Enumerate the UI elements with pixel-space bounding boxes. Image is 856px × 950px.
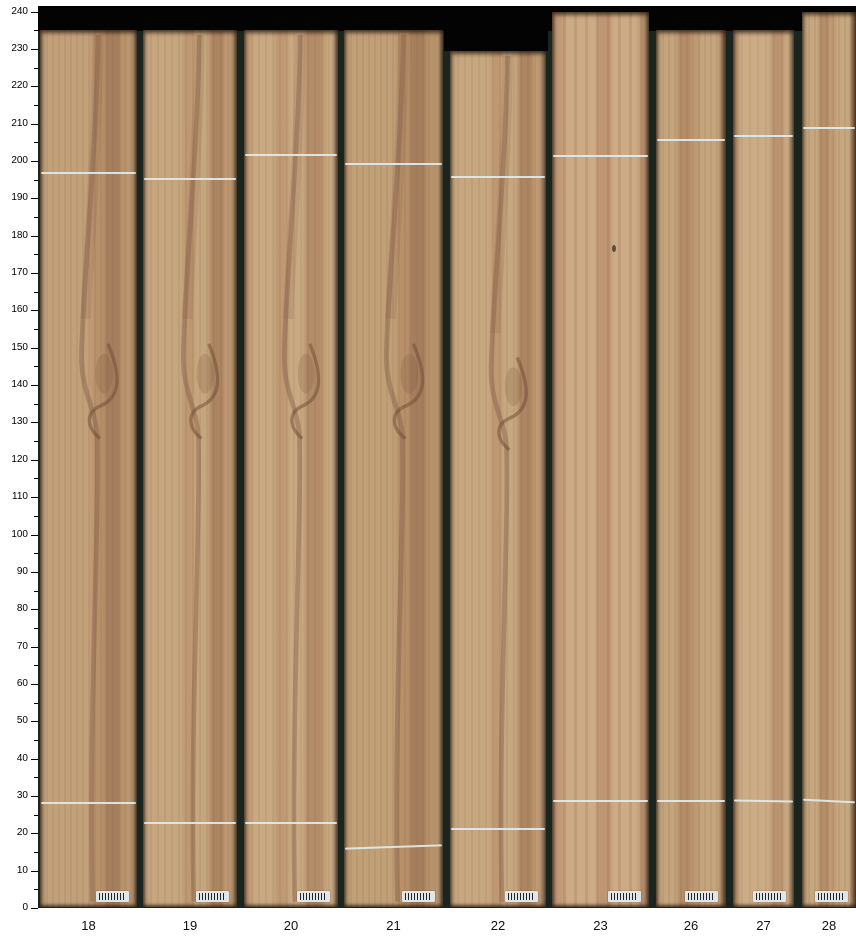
barcode-sticker [505,891,538,902]
board-23 [552,12,649,907]
upper-chalk-mark [144,178,236,180]
upper-chalk-mark [734,135,793,137]
wood-grain-knot-icon [450,51,546,907]
y-axis-tick-label: 100 [0,529,28,541]
y-axis-minor-tick [34,889,38,890]
y-axis-major-tick [31,796,38,797]
lower-chalk-mark [657,800,725,802]
barcode-sticker [685,891,718,902]
y-axis-minor-tick [34,553,38,554]
y-axis-tick-label: 110 [0,491,28,503]
wood-grain-knot-icon [244,30,338,907]
y-axis-tick-label: 130 [0,416,28,428]
y-axis-minor-tick [34,478,38,479]
y-axis-tick-label: 70 [0,641,28,653]
upper-chalk-mark [345,163,442,165]
barcode-sticker [96,891,129,902]
board-22 [450,51,546,907]
y-axis-major-tick [31,572,38,573]
y-axis-minor-tick [34,628,38,629]
y-axis-major-tick [31,86,38,87]
y-axis-major-tick [31,348,38,349]
barcode-sticker [753,891,786,902]
y-axis-major-tick [31,721,38,722]
y-axis-minor-tick [34,852,38,853]
y-axis-minor-tick [34,142,38,143]
upper-chalk-mark [245,154,337,156]
lower-chalk-mark [41,802,136,804]
y-axis-tick-label: 0 [0,902,28,914]
x-axis-label-21: 21 [374,918,414,933]
y-axis-tick-label: 240 [0,6,28,18]
y-axis-minor-tick [34,703,38,704]
y-axis-tick-label: 150 [0,342,28,354]
y-axis-major-tick [31,535,38,536]
y-axis-tick-label: 50 [0,715,28,727]
y-axis-tick-label: 180 [0,230,28,242]
y-axis-minor-tick [34,815,38,816]
y-axis-minor-tick [34,217,38,218]
y-axis-tick-label: 190 [0,192,28,204]
board-28 [802,12,856,907]
y-axis-major-tick [31,385,38,386]
y-axis-major-tick [31,833,38,834]
y-axis-major-tick [31,460,38,461]
barcode-sticker [608,891,641,902]
y-axis-minor-tick [34,105,38,106]
lower-chalk-mark [245,822,337,824]
wood-board-figure: 0102030405060708090100110120130140150160… [0,0,856,950]
y-axis-major-tick [31,609,38,610]
upper-chalk-mark [41,172,136,174]
lower-chalk-mark [451,828,545,830]
y-axis-major-tick [31,497,38,498]
y-axis-tick-label: 160 [0,304,28,316]
y-axis-tick-label: 230 [0,43,28,55]
y-axis-major-tick [31,759,38,760]
x-axis-label-26: 26 [671,918,711,933]
y-axis-major-tick [31,161,38,162]
small-knot-speck [612,245,616,252]
y-axis-major-tick [31,124,38,125]
y-axis-minor-tick [34,254,38,255]
background-top-band-column-22 [444,6,548,51]
y-axis-major-tick [31,12,38,13]
y-axis-minor-tick [34,516,38,517]
board-21 [344,30,443,907]
y-axis-minor-tick [34,329,38,330]
upper-chalk-mark [803,127,855,129]
y-axis-minor-tick [34,665,38,666]
y-axis-tick-label: 80 [0,603,28,615]
x-axis-label-19: 19 [170,918,210,933]
y-axis-tick-label: 220 [0,80,28,92]
y-axis-minor-tick [34,30,38,31]
y-axis-tick-label: 90 [0,566,28,578]
upper-chalk-mark [553,155,648,157]
lower-chalk-mark [803,798,855,803]
y-axis-tick-label: 120 [0,454,28,466]
y-axis-minor-tick [34,740,38,741]
board-27 [733,30,794,907]
y-axis-minor-tick [34,591,38,592]
y-axis-minor-tick [34,404,38,405]
board-19 [143,30,237,907]
y-axis-major-tick [31,908,38,909]
y-axis-major-tick [31,310,38,311]
y-axis: 0102030405060708090100110120130140150160… [0,0,38,950]
y-axis-major-tick [31,49,38,50]
lower-chalk-mark [553,800,648,802]
x-axis-label-18: 18 [69,918,109,933]
lower-chalk-mark [144,822,236,824]
y-axis-tick-label: 10 [0,865,28,877]
board-18 [40,30,137,907]
y-axis-tick-label: 210 [0,118,28,130]
x-axis-label-20: 20 [271,918,311,933]
wood-grain-knot-icon [344,30,443,907]
y-axis-tick-label: 30 [0,790,28,802]
barcode-sticker [815,891,848,902]
y-axis-tick-label: 140 [0,379,28,391]
barcode-sticker [297,891,330,902]
y-axis-minor-tick [34,366,38,367]
barcode-sticker [402,891,435,902]
y-axis-tick-label: 40 [0,753,28,765]
y-axis-tick-label: 60 [0,678,28,690]
y-axis-major-tick [31,422,38,423]
x-axis-label-28: 28 [809,918,849,933]
wood-grain-knot-icon [40,30,137,907]
y-axis-tick-label: 170 [0,267,28,279]
y-axis-minor-tick [34,777,38,778]
y-axis-major-tick [31,236,38,237]
y-axis-major-tick [31,647,38,648]
wood-grain-knot-icon [143,30,237,907]
upper-chalk-mark [451,176,545,178]
board-20 [244,30,338,907]
x-axis-label-27: 27 [744,918,784,933]
x-axis-labels: 181920212223262728 [0,918,856,940]
y-axis-major-tick [31,273,38,274]
board-26 [656,30,726,907]
y-axis-minor-tick [34,68,38,69]
upper-chalk-mark [657,139,725,141]
y-axis-minor-tick [34,180,38,181]
lower-chalk-mark [734,799,793,802]
x-axis-label-22: 22 [478,918,518,933]
y-axis-minor-tick [34,292,38,293]
x-axis-label-23: 23 [581,918,621,933]
plot-area [38,6,856,908]
y-axis-tick-label: 20 [0,827,28,839]
y-axis-major-tick [31,871,38,872]
y-axis-major-tick [31,684,38,685]
y-axis-tick-label: 200 [0,155,28,167]
y-axis-major-tick [31,198,38,199]
barcode-sticker [196,891,229,902]
y-axis-minor-tick [34,441,38,442]
